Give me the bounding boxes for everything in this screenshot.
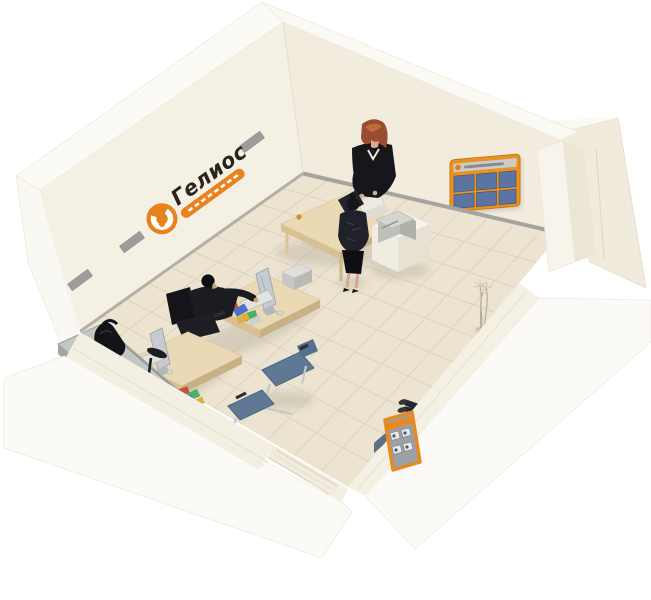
cup [296,214,301,219]
mouse-1 [277,311,283,315]
brochure-stand [385,412,420,470]
info-board [450,154,522,215]
client-hair [347,198,360,211]
office-render-svg: Гелиос [0,0,651,600]
mouse-2 [167,370,173,374]
office-render: Гелиос [0,0,651,600]
